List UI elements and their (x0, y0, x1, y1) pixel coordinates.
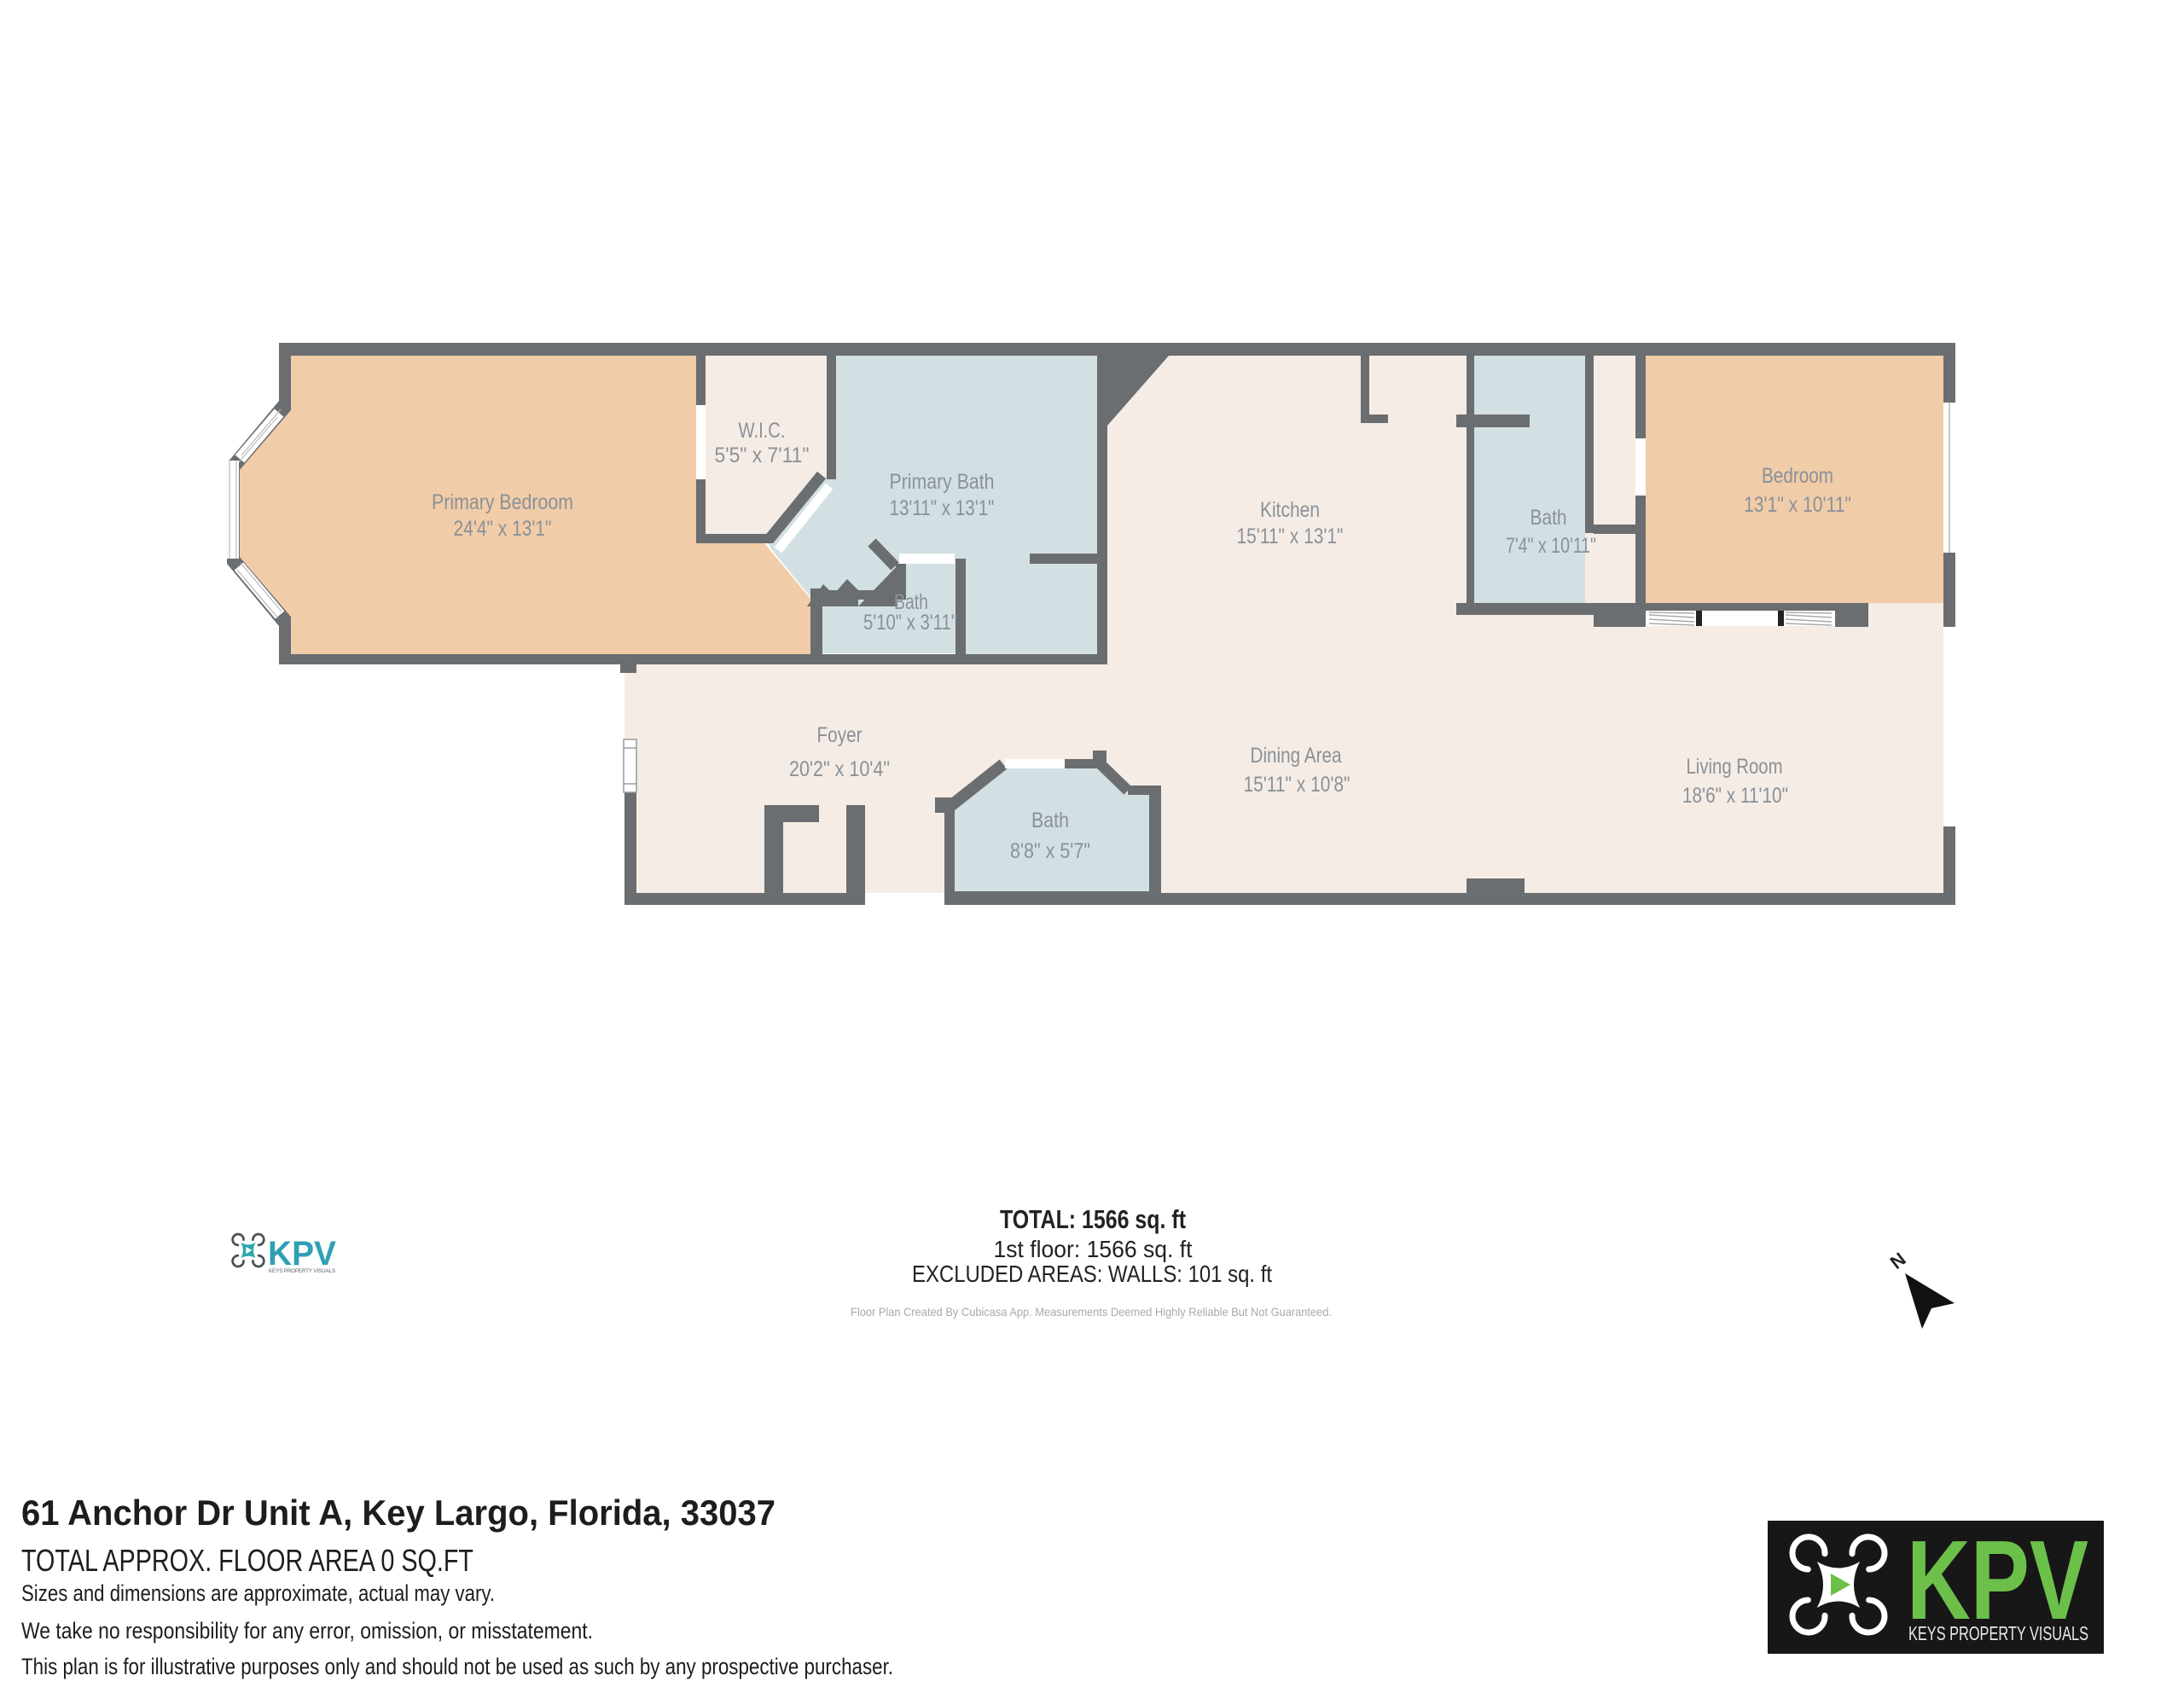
svg-text:TOTAL APPROX. FLOOR AREA 0 SQ.: TOTAL APPROX. FLOOR AREA 0 SQ.FT (21, 1543, 473, 1578)
svg-text:Floor Plan Created By Cubicasa: Floor Plan Created By Cubicasa App. Meas… (851, 1305, 1332, 1319)
svg-text:Living Room: Living Room (1687, 755, 1783, 779)
svg-text:7'4" x 10'11": 7'4" x 10'11" (1506, 534, 1596, 558)
svg-text:15'11" x 10'8": 15'11" x 10'8" (1244, 773, 1350, 797)
svg-text:18'6" x 11'10": 18'6" x 11'10" (1682, 784, 1788, 808)
svg-text:Bedroom: Bedroom (1762, 464, 1833, 488)
svg-text:61 Anchor Dr Unit A, Key Largo: 61 Anchor Dr Unit A, Key Largo, Florida,… (21, 1493, 775, 1533)
svg-text:Dining Area: Dining Area (1251, 744, 1342, 768)
svg-text:20'2" x 10'4": 20'2" x 10'4" (789, 757, 890, 781)
svg-text:Bath: Bath (1531, 506, 1567, 530)
svg-text:13'11" x 13'1": 13'11" x 13'1" (890, 496, 995, 520)
svg-text:24'4" x 13'1": 24'4" x 13'1" (454, 517, 552, 541)
svg-text:Sizes and dimensions are appro: Sizes and dimensions are approximate, ac… (21, 1580, 495, 1606)
svg-text:1st floor: 1566 sq. ft: 1st floor: 1566 sq. ft (994, 1236, 1193, 1262)
svg-text:5'10" x 3'11": 5'10" x 3'11" (863, 611, 957, 635)
svg-text:KEYS PROPERTY VISUALS: KEYS PROPERTY VISUALS (1908, 1622, 2088, 1644)
svg-text:Foyer: Foyer (817, 723, 863, 747)
svg-text:We take no responsibility for: We take no responsibility for any error,… (21, 1618, 593, 1644)
svg-text:EXCLUDED AREAS: WALLS: 101 sq.: EXCLUDED AREAS: WALLS: 101 sq. ft (912, 1261, 1272, 1287)
svg-text:5'5" x 7'11": 5'5" x 7'11" (715, 443, 810, 467)
svg-text:Primary Bath: Primary Bath (890, 470, 995, 494)
svg-text:KEYS PROPERTY VISUALS: KEYS PROPERTY VISUALS (269, 1268, 336, 1274)
svg-text:KPV: KPV (268, 1235, 336, 1272)
svg-text:8'8" x 5'7": 8'8" x 5'7" (1010, 839, 1090, 863)
svg-text:TOTAL: 1566 sq. ft: TOTAL: 1566 sq. ft (1000, 1204, 1186, 1234)
svg-text:Kitchen: Kitchen (1260, 498, 1320, 522)
svg-text:Primary Bedroom: Primary Bedroom (432, 490, 573, 514)
svg-text:Bath: Bath (1031, 809, 1069, 832)
svg-text:W.I.C.: W.I.C. (739, 419, 786, 443)
svg-text:15'11" x 13'1": 15'11" x 13'1" (1237, 525, 1344, 548)
svg-text:13'1" x 10'11": 13'1" x 10'11" (1744, 493, 1851, 517)
svg-text:This plan is for illustrative: This plan is for illustrative purposes o… (21, 1654, 893, 1679)
